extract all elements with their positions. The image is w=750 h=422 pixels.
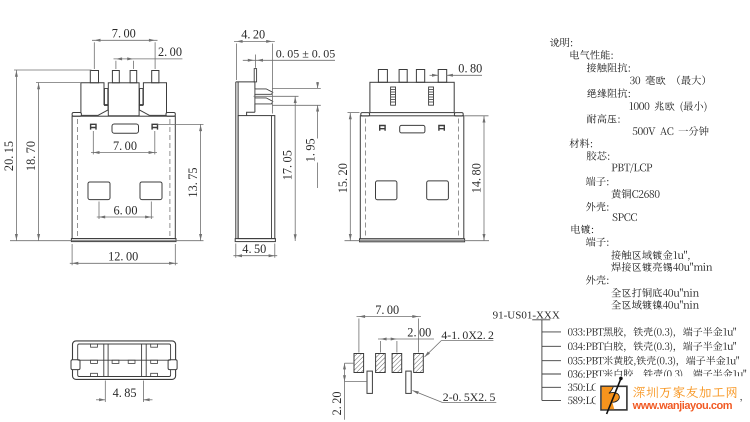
svg-text:4. 50: 4. 50: [242, 242, 266, 256]
svg-text:0. 05 ± 0. 05: 0. 05 ± 0. 05: [276, 46, 335, 60]
svg-text:www.wanjiayou.com: www.wanjiayou.com: [632, 400, 733, 412]
svg-text:4. 20: 4. 20: [241, 28, 265, 42]
svg-text:13. 75: 13. 75: [186, 167, 200, 197]
svg-text:2. 00: 2. 00: [158, 45, 182, 59]
svg-text:12. 00: 12. 00: [108, 250, 138, 264]
svg-text:15. 20: 15. 20: [336, 163, 350, 193]
svg-text:7. 00: 7. 00: [375, 303, 399, 317]
svg-text:14. 80: 14. 80: [469, 163, 483, 193]
svg-text:17. 05: 17. 05: [281, 150, 295, 180]
svg-text:2-0. 5X2. 5: 2-0. 5X2. 5: [443, 390, 496, 404]
svg-text:1. 95: 1. 95: [303, 138, 317, 162]
svg-text:7. 00: 7. 00: [112, 27, 136, 41]
svg-text:4. 85: 4. 85: [113, 386, 137, 400]
svg-text:0. 80: 0. 80: [458, 61, 482, 75]
svg-text:4-1. 0X2. 2: 4-1. 0X2. 2: [441, 328, 494, 342]
svg-text:20. 15: 20. 15: [2, 141, 16, 171]
svg-text:6. 00: 6. 00: [114, 203, 138, 217]
svg-text:7. 00: 7. 00: [113, 139, 137, 153]
svg-text:2. 00: 2. 00: [407, 325, 431, 339]
svg-text:18. 70: 18. 70: [24, 141, 38, 171]
svg-text:2. 20: 2. 20: [330, 391, 344, 415]
